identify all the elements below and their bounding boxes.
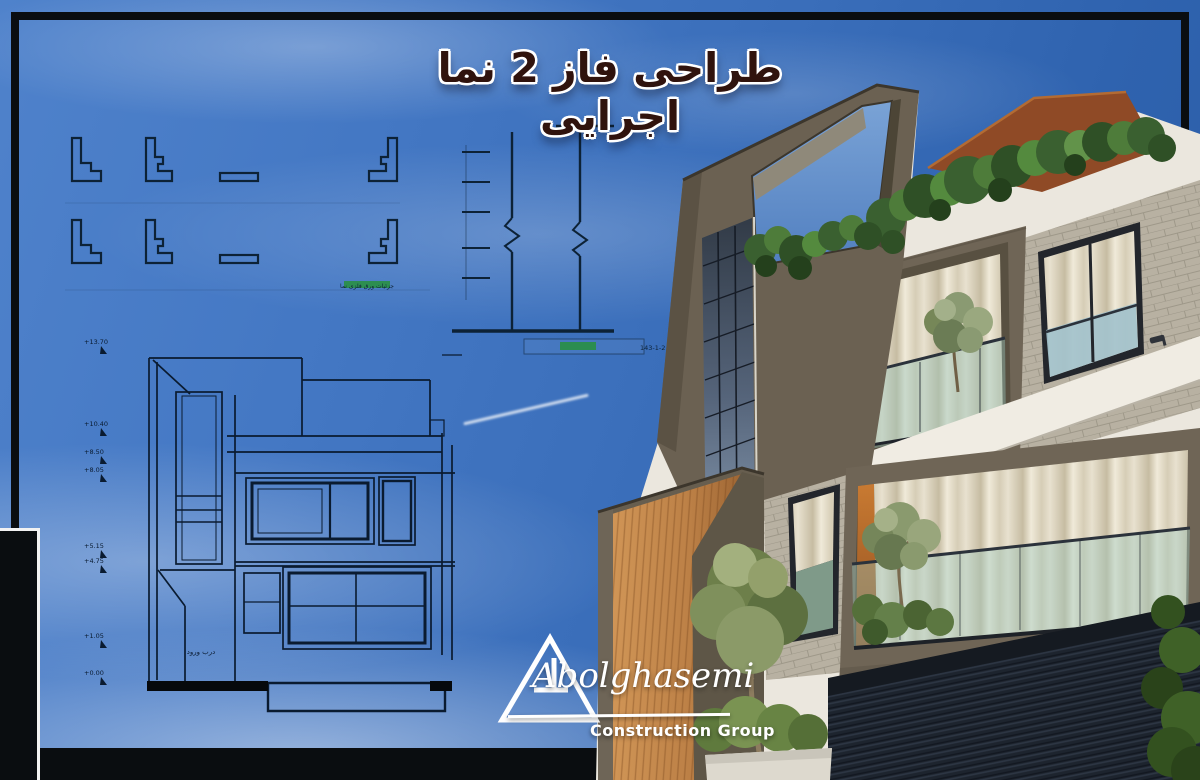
poster-title: طراحی فاز 2 نما اجرایی xyxy=(390,44,830,140)
company-logo: Abolghasemi Construction Group xyxy=(474,628,744,754)
logo-subtitle: Construction Group xyxy=(590,721,744,740)
logo-name: Abolghasemi xyxy=(532,656,744,696)
poster-canvas: جزئیات ورق فلزی نما پیوست نما اصلی 2-1-1… xyxy=(0,0,1200,780)
ground-window-curtains xyxy=(793,492,834,572)
